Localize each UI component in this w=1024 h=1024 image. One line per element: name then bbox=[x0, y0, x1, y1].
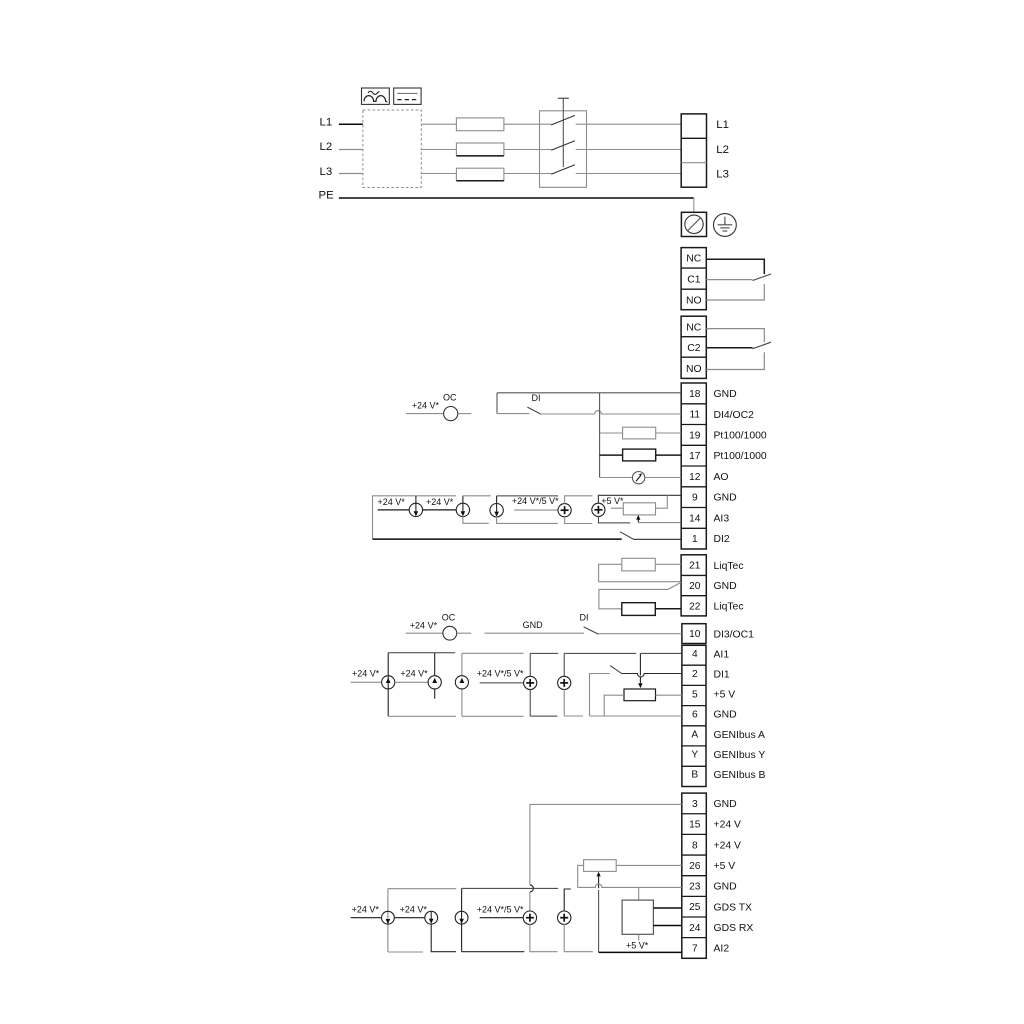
svg-text:19: 19 bbox=[689, 430, 701, 441]
svg-text:Y: Y bbox=[691, 750, 698, 761]
svg-text:GND: GND bbox=[714, 581, 737, 592]
svg-text:DI: DI bbox=[532, 393, 541, 403]
svg-text:26: 26 bbox=[689, 861, 701, 872]
svg-text:GENIbus B: GENIbus B bbox=[714, 770, 766, 781]
svg-text:GND: GND bbox=[714, 389, 737, 400]
svg-text:+24 V*: +24 V* bbox=[400, 668, 428, 678]
svg-text:GENIbus Y: GENIbus Y bbox=[714, 750, 766, 761]
svg-text:DI4/OC2: DI4/OC2 bbox=[714, 410, 755, 421]
svg-text:DI: DI bbox=[580, 613, 589, 623]
svg-text:NO: NO bbox=[686, 364, 702, 375]
svg-text:Pt100/1000: Pt100/1000 bbox=[714, 431, 767, 442]
svg-text:AO: AO bbox=[714, 472, 729, 483]
svg-text:14: 14 bbox=[689, 513, 701, 524]
svg-text:L2: L2 bbox=[716, 144, 729, 156]
svg-text:L3: L3 bbox=[716, 168, 729, 180]
svg-text:GND: GND bbox=[714, 799, 737, 810]
svg-text:1: 1 bbox=[692, 534, 698, 545]
svg-text:+5 V*: +5 V* bbox=[626, 940, 649, 950]
svg-text:2: 2 bbox=[692, 669, 698, 680]
svg-text:5: 5 bbox=[692, 689, 698, 700]
svg-text:+24 V: +24 V bbox=[714, 840, 742, 851]
svg-text:AI3: AI3 bbox=[714, 514, 730, 525]
svg-text:GND: GND bbox=[714, 882, 737, 893]
svg-text:LiqTec: LiqTec bbox=[714, 602, 744, 613]
svg-text:+24 V*: +24 V* bbox=[400, 904, 428, 914]
svg-text:7: 7 bbox=[692, 944, 698, 955]
svg-text:+24 V*/5 V*: +24 V*/5 V* bbox=[477, 904, 524, 914]
svg-text:C1: C1 bbox=[687, 275, 701, 286]
svg-text:NC: NC bbox=[686, 322, 702, 333]
svg-text:+24 V*/5 V*: +24 V*/5 V* bbox=[512, 496, 559, 506]
svg-text:GDS RX: GDS RX bbox=[714, 923, 754, 934]
svg-text:17: 17 bbox=[689, 451, 701, 462]
svg-text:DI1: DI1 bbox=[714, 670, 730, 681]
svg-text:OC: OC bbox=[442, 613, 456, 623]
svg-text:15: 15 bbox=[689, 820, 701, 831]
svg-text:GND: GND bbox=[523, 620, 544, 630]
svg-text:A: A bbox=[691, 730, 698, 741]
svg-text:DI3/OC1: DI3/OC1 bbox=[714, 629, 755, 640]
svg-text:6: 6 bbox=[692, 709, 698, 720]
svg-text:GND: GND bbox=[714, 710, 737, 721]
svg-text:21: 21 bbox=[689, 561, 701, 572]
svg-text:10: 10 bbox=[689, 629, 701, 640]
svg-text:GENIbus A: GENIbus A bbox=[714, 730, 765, 741]
svg-text:GDS TX: GDS TX bbox=[714, 902, 753, 913]
svg-text:AI1: AI1 bbox=[714, 649, 730, 660]
svg-text:DI2: DI2 bbox=[714, 534, 730, 545]
svg-text:L2: L2 bbox=[320, 141, 333, 153]
svg-text:8: 8 bbox=[692, 840, 698, 851]
svg-text:+24 V*: +24 V* bbox=[378, 497, 406, 507]
svg-text:B: B bbox=[691, 770, 698, 781]
svg-text:+24 V*: +24 V* bbox=[352, 668, 380, 678]
svg-text:22: 22 bbox=[689, 601, 701, 612]
svg-text:OC: OC bbox=[443, 392, 457, 402]
svg-text:3: 3 bbox=[692, 799, 698, 810]
svg-text:4: 4 bbox=[692, 649, 698, 660]
svg-text:LiqTec: LiqTec bbox=[714, 561, 744, 572]
svg-text:+24 V*: +24 V* bbox=[426, 497, 454, 507]
svg-text:9: 9 bbox=[692, 492, 698, 503]
svg-text:11: 11 bbox=[690, 410, 701, 421]
svg-text:L3: L3 bbox=[320, 166, 333, 178]
svg-text:AI2: AI2 bbox=[714, 944, 730, 955]
svg-text:+24 V: +24 V bbox=[714, 820, 742, 831]
svg-text:GND: GND bbox=[714, 493, 737, 504]
svg-text:25: 25 bbox=[689, 902, 701, 913]
svg-text:+5 V: +5 V bbox=[714, 690, 736, 701]
svg-text:12: 12 bbox=[689, 472, 701, 483]
svg-text:+5 V*: +5 V* bbox=[601, 496, 624, 506]
svg-text:NO: NO bbox=[686, 295, 702, 306]
svg-text:L1: L1 bbox=[716, 119, 729, 131]
svg-text:NC: NC bbox=[686, 254, 702, 265]
svg-text:24: 24 bbox=[689, 923, 701, 934]
svg-text:+24 V*: +24 V* bbox=[410, 620, 438, 630]
svg-text:18: 18 bbox=[689, 389, 701, 400]
svg-text:+5 V: +5 V bbox=[714, 861, 736, 872]
svg-text:C2: C2 bbox=[687, 343, 701, 354]
svg-text:PE: PE bbox=[319, 189, 335, 201]
svg-text:Pt100/1000: Pt100/1000 bbox=[714, 451, 767, 462]
svg-text:L1: L1 bbox=[320, 116, 333, 128]
svg-text:23: 23 bbox=[689, 882, 701, 893]
svg-text:+24 V*: +24 V* bbox=[412, 401, 440, 411]
svg-text:20: 20 bbox=[689, 581, 701, 592]
svg-text:+24 V*: +24 V* bbox=[352, 904, 380, 914]
svg-text:+24 V*/5 V*: +24 V*/5 V* bbox=[477, 668, 524, 678]
